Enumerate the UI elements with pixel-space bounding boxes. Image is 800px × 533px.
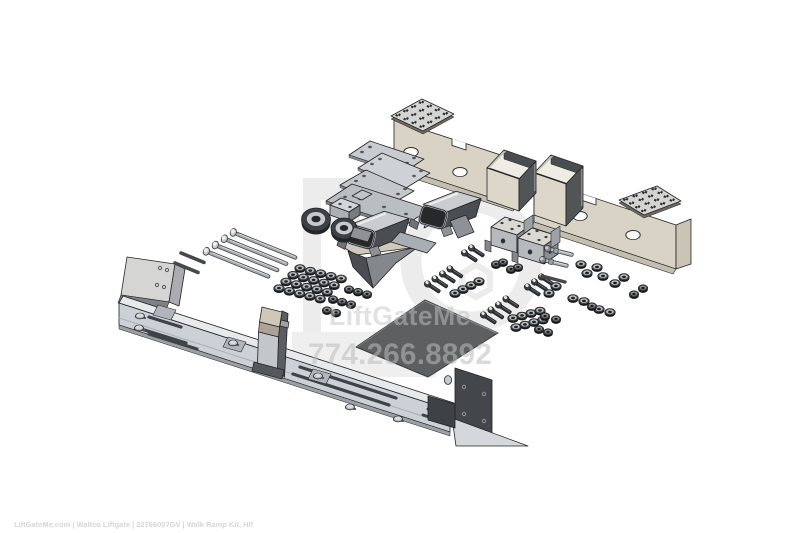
svg-text:LiftGateMe: LiftGateMe bbox=[329, 301, 471, 331]
svg-text:LiftGateMe.com | Waltco Liftga: LiftGateMe.com | Waltco Liftgate | 22766… bbox=[14, 520, 254, 529]
svg-text:774.266.8892: 774.266.8892 bbox=[308, 338, 492, 371]
